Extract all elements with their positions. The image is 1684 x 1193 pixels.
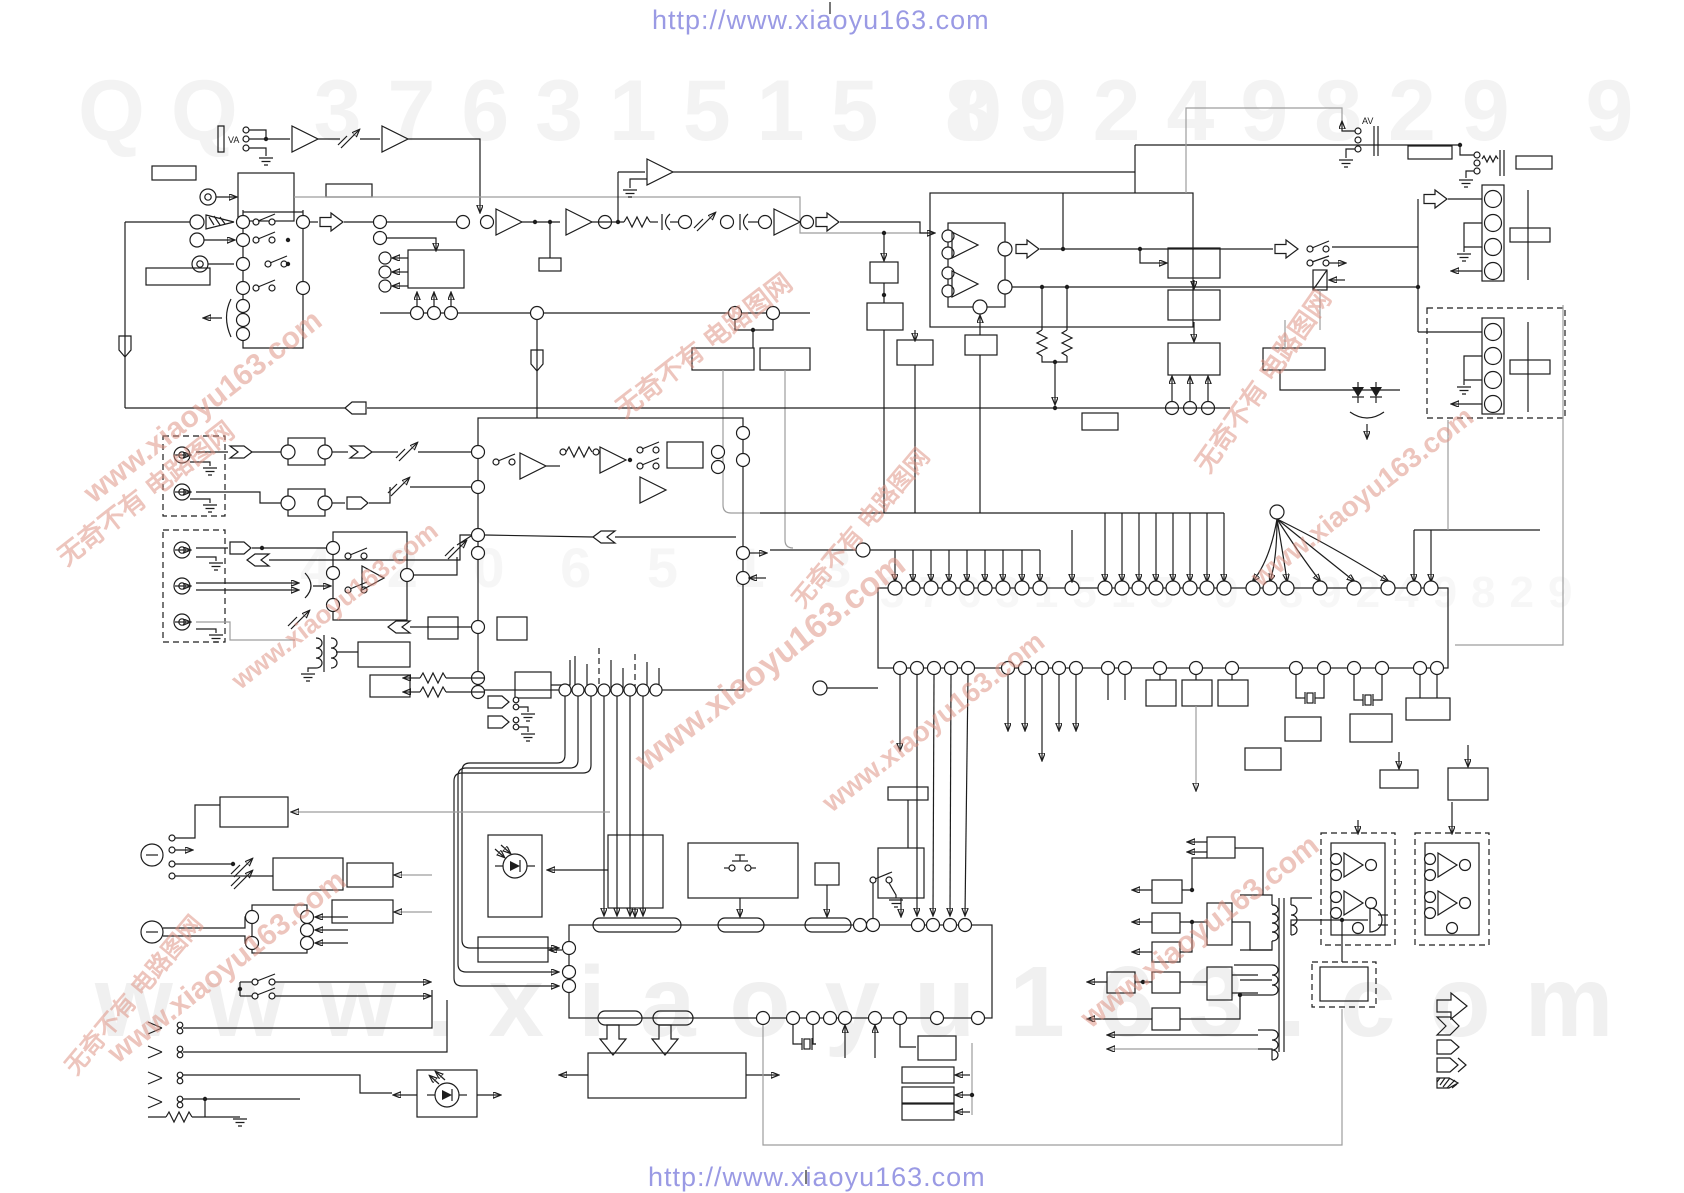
legend-arrow-block — [1437, 993, 1467, 1019]
speaker-connector-section — [1418, 185, 1565, 418]
header-url: http://www.xiaoyu163.com — [652, 5, 990, 36]
power-supply-section — [1088, 837, 1388, 1060]
headphone-jack-section: AV — [1135, 108, 1552, 193]
system-control-section — [394, 787, 1342, 1145]
phono-tuner-section — [163, 436, 471, 697]
legend-arrow-chevron — [1437, 1017, 1459, 1035]
jack-label-av: AV — [1362, 116, 1373, 126]
mid-signal-bus — [125, 402, 1230, 414]
legend-arrow-flag-chevron — [1437, 1058, 1466, 1072]
preamp-chain — [380, 145, 1135, 548]
page: { "header": { "url": "http://www.xiaoyu1… — [0, 0, 1684, 1190]
output-amp-ic-section — [1321, 802, 1489, 945]
legend-arrow-flag — [1437, 1040, 1459, 1054]
power-amp-section — [867, 193, 1420, 513]
footer-url: http://www.xiaoyu163.com — [648, 1162, 986, 1193]
legend-arrow-hatched — [1437, 1078, 1458, 1088]
jack-label: VA — [228, 135, 239, 145]
legend-symbols — [1437, 993, 1467, 1088]
main-ic-section — [760, 305, 1563, 915]
